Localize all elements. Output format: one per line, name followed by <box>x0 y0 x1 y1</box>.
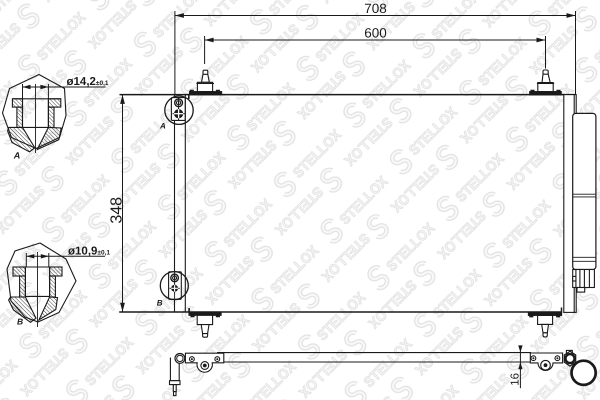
svg-text:A: A <box>13 151 20 161</box>
svg-text:B: B <box>17 316 23 326</box>
svg-text:348: 348 <box>108 197 125 224</box>
svg-text:B: B <box>157 299 163 308</box>
svg-text:A: A <box>159 121 166 130</box>
svg-text:600: 600 <box>364 25 387 40</box>
svg-text:708: 708 <box>364 1 387 16</box>
svg-text:16: 16 <box>509 373 521 386</box>
